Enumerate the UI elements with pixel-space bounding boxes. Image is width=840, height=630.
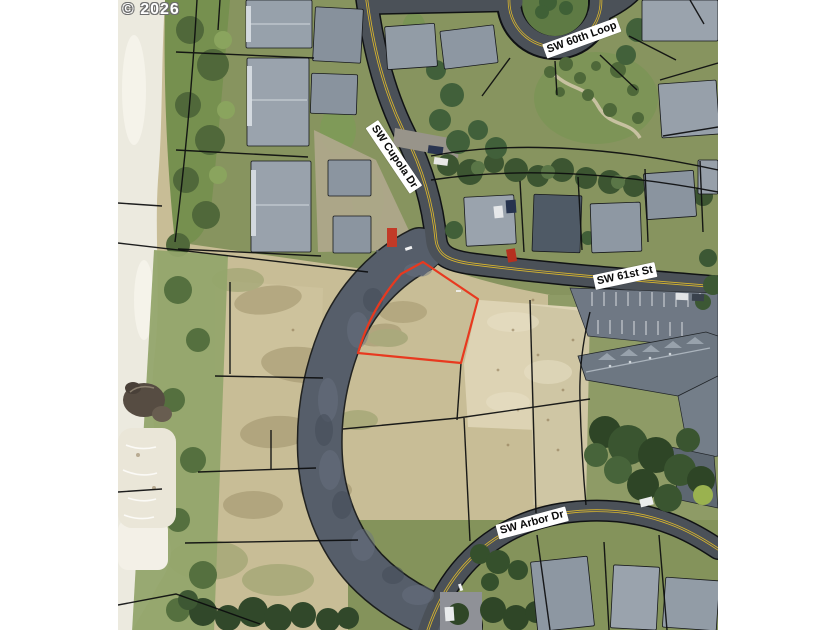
aerial-map-image: © 2026 SW 60th Loop SW Cupola Dr SW 61st… xyxy=(118,0,718,630)
aerial-photo-canvas: © 2026 SW 60th Loop SW Cupola Dr SW 61st… xyxy=(0,0,840,630)
copyright-watermark: © 2026 xyxy=(122,1,180,19)
aerial-imagery xyxy=(118,0,718,630)
